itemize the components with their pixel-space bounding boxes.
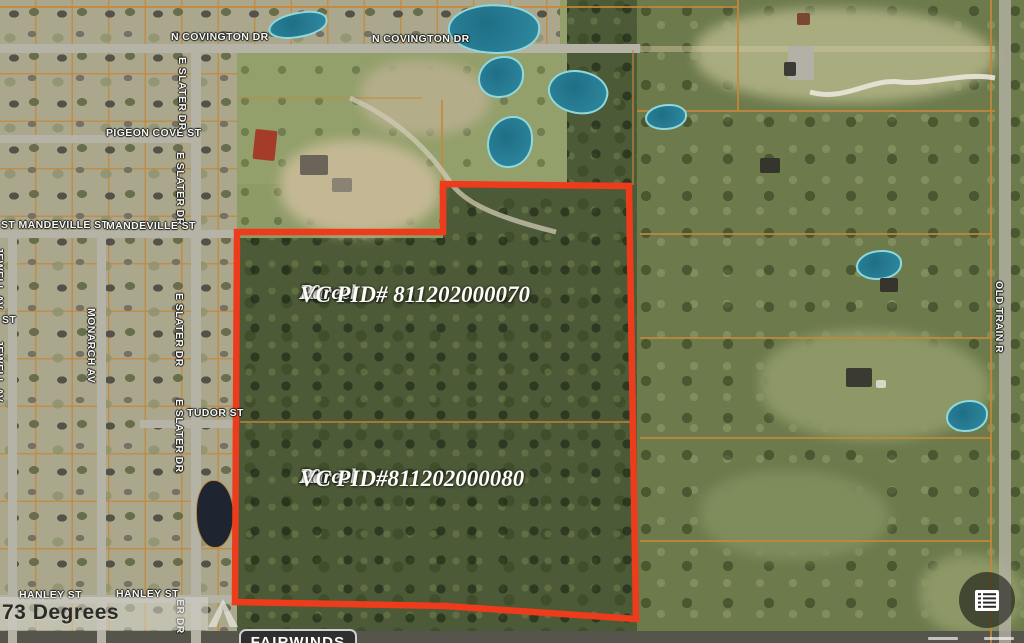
fairwinds-badge: FAIRWINDS <box>239 629 357 643</box>
street-label-e-slater-dr: E SLATER DR <box>176 57 188 131</box>
street-label-jewell-av: JEWELL AV <box>0 340 5 402</box>
degrees-watermark: 73 Degrees <box>2 601 119 625</box>
scale-mark <box>984 637 1014 640</box>
street-label-mandeville-st: MANDEVILLE ST <box>106 220 196 232</box>
parcel-pid: VC PID# 811202000070 <box>300 282 530 307</box>
aerial-parcel-map: N COVINGTON DR N COVINGTON DR PIGEON COV… <box>0 0 1024 643</box>
street-label-jewell-av: JEWELL AV <box>0 247 5 309</box>
street-label-e-slater-dr: E SLATER DR <box>173 399 185 473</box>
street-label-n-covington-dr: N COVINGTON DR <box>372 33 470 45</box>
farm-driveway-path <box>350 98 556 232</box>
street-label-monarch-av: MONARCH AV <box>85 308 97 383</box>
layers-list-button[interactable] <box>959 572 1015 628</box>
parcel-boundary-overlay <box>0 0 1024 643</box>
parcel-pid: VC PID#811202000080 <box>300 466 524 491</box>
street-label-old-train-r: OLD TRAIN R <box>993 281 1005 353</box>
red-parcel-outline <box>235 184 636 619</box>
white-driveway-path <box>810 76 995 94</box>
street-label-st-fragment: ST <box>2 314 16 326</box>
street-label-e-slater-dr: E SLATER DR <box>173 293 185 367</box>
street-label-st-mandeville-st: ST MANDEVILLE ST <box>1 219 108 231</box>
street-label-tudor-st: TUDOR ST <box>187 407 244 419</box>
layers-list-icon <box>975 590 999 611</box>
street-label-e-slater-dr: E SLATER DR <box>174 152 186 226</box>
street-label-n-covington-dr: N COVINGTON DR <box>171 31 269 43</box>
scale-mark <box>928 637 958 640</box>
